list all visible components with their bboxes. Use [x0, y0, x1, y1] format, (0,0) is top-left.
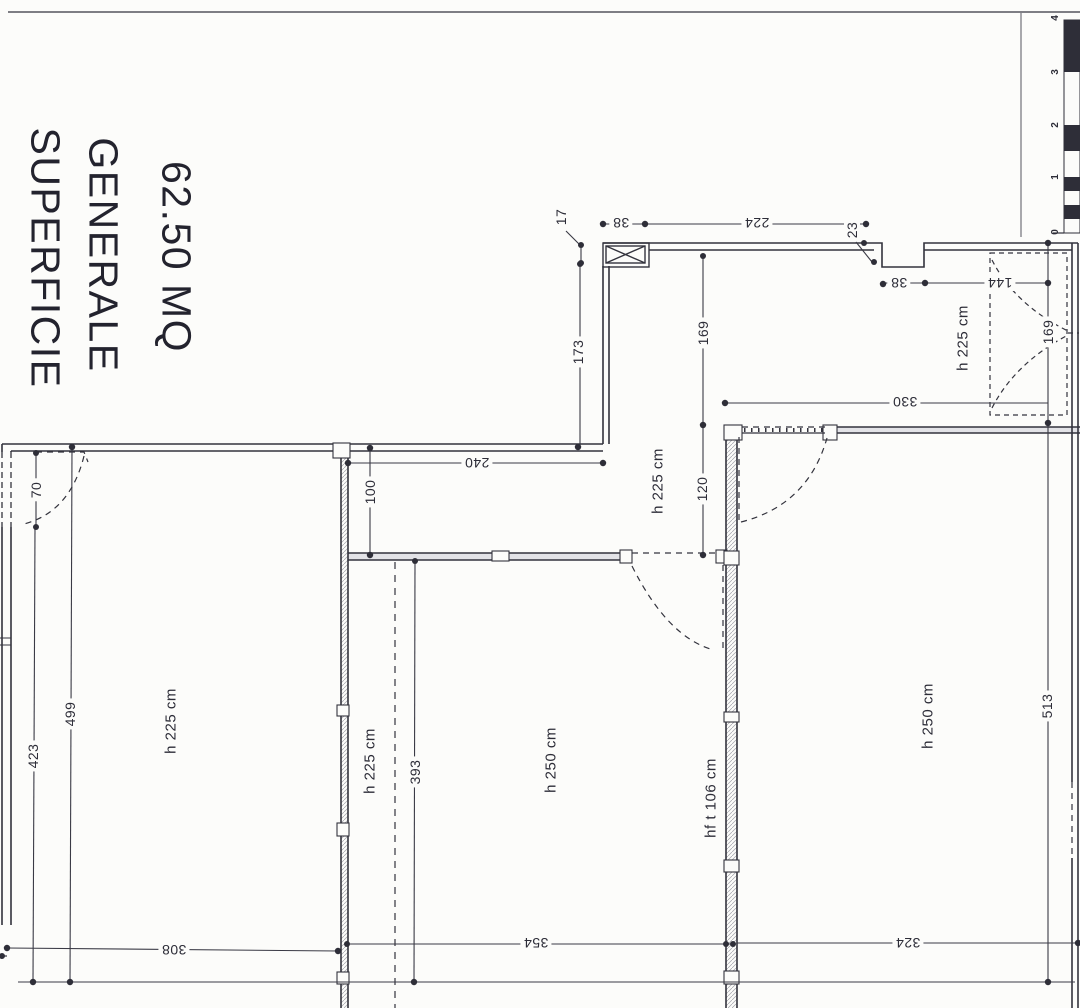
- walls: [0, 243, 1080, 1008]
- dim-100: 100: [362, 477, 378, 508]
- room-h250-right: h 250 cm: [920, 681, 937, 751]
- dim-70: 70: [28, 479, 44, 502]
- wall-fills: [341, 425, 1080, 1008]
- dim-354: 354: [521, 935, 552, 951]
- dim-38-right: 38: [888, 275, 911, 291]
- title-line-1: SUPERFICIE: [22, 127, 69, 388]
- door-swings: [24, 437, 827, 650]
- dim-423: 423: [25, 741, 41, 772]
- dim-144: 144: [985, 275, 1016, 291]
- dim-513: 513: [1039, 691, 1055, 722]
- dim-173: 173: [570, 337, 586, 368]
- scale-number-4: 4: [1051, 15, 1061, 21]
- room-h225-mid: h 225 cm: [362, 726, 379, 796]
- dim-23: 23: [844, 219, 860, 242]
- room-h250-mid: h 250 cm: [543, 725, 560, 795]
- title-line-2: GENERALE: [80, 137, 127, 372]
- dim-17: 17: [553, 206, 569, 229]
- dim-240: 240: [462, 455, 493, 471]
- scale-number-0: 0: [1051, 229, 1061, 235]
- floor-plan-drawing: [0, 0, 1080, 1008]
- dim-169-right: 169: [1040, 317, 1056, 348]
- dim-120: 120: [694, 474, 710, 505]
- wall-joints: [333, 425, 837, 984]
- floor-plan-scan: SUPERFICIE GENERALE 62.50 MQ 38224172338…: [0, 0, 1080, 1008]
- room-hft106: hf t 106 cm: [703, 756, 720, 840]
- scale-number-1: 1: [1051, 174, 1061, 180]
- dim-308: 308: [159, 942, 190, 958]
- dim-38-top: 38: [610, 215, 633, 231]
- dim-499: 499: [62, 699, 78, 730]
- dim-330: 330: [890, 394, 921, 410]
- room-h225-hall: h 225 cm: [650, 446, 667, 516]
- dim-393: 393: [407, 757, 423, 788]
- column-symbol: [603, 243, 649, 267]
- scale-number-2: 2: [1051, 122, 1061, 128]
- dim-169-mid: 169: [695, 318, 711, 349]
- scale-number-3: 3: [1051, 69, 1061, 75]
- total-area-value: 62.50 MQ: [153, 161, 200, 353]
- room-h225-topright: h 225 cm: [955, 303, 972, 373]
- room-h225-left: h 225 cm: [163, 686, 180, 756]
- dim-324: 324: [893, 935, 924, 951]
- dim-224: 224: [742, 215, 773, 231]
